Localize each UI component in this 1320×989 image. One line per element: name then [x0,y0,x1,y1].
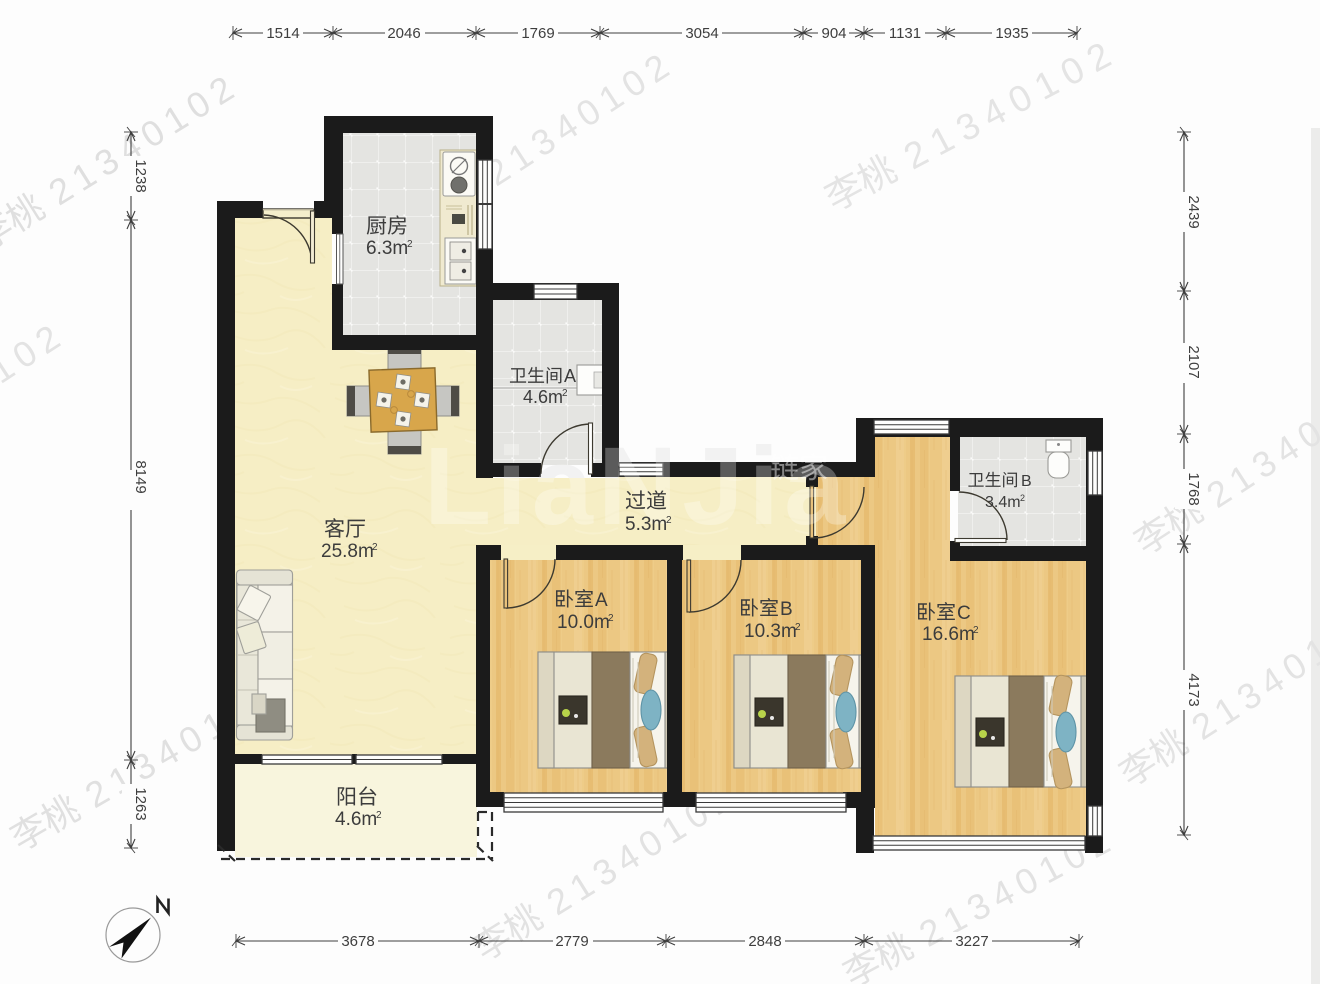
svg-text:2: 2 [795,622,801,633]
svg-text:2779: 2779 [555,933,588,950]
svg-text:10.0m: 10.0m [557,612,610,633]
svg-text:3054: 3054 [685,25,718,42]
svg-text:904: 904 [821,25,846,42]
svg-text:2439: 2439 [1185,195,1202,228]
svg-text:4.6m: 4.6m [523,387,563,407]
svg-text:1768: 1768 [1185,472,1202,505]
svg-text:16.6m: 16.6m [922,624,975,645]
svg-text:8149: 8149 [132,460,149,493]
svg-text:10.3m: 10.3m [744,621,797,642]
svg-text:2848: 2848 [748,933,781,950]
svg-text:4.6m: 4.6m [335,809,377,830]
svg-text:B: B [780,599,793,620]
svg-text:25.8m: 25.8m [321,541,374,562]
svg-text:2: 2 [666,515,672,526]
svg-text:1935: 1935 [995,25,1028,42]
svg-text:1514: 1514 [266,25,299,42]
svg-text:2107: 2107 [1185,345,1202,378]
svg-text:2046: 2046 [387,25,420,42]
svg-text:1131: 1131 [889,25,921,42]
svg-text:A: A [564,366,576,386]
svg-text:A: A [595,590,608,611]
svg-text:C: C [957,603,971,624]
svg-text:5.3m: 5.3m [625,514,667,535]
svg-text:2: 2 [407,239,413,250]
svg-text:2: 2 [376,810,382,821]
svg-text:3678: 3678 [341,933,374,950]
svg-text:1263: 1263 [132,787,149,820]
svg-text:6.3m: 6.3m [366,238,408,259]
svg-text:B: B [1021,473,1032,490]
svg-text:1769: 1769 [521,25,554,42]
svg-text:2: 2 [973,625,979,636]
svg-text:3227: 3227 [955,933,988,950]
svg-text:2: 2 [1020,493,1025,503]
svg-text:2: 2 [372,542,378,553]
svg-text:4173: 4173 [1185,673,1202,706]
svg-text:2: 2 [608,613,614,624]
svg-text:1238: 1238 [132,159,149,192]
svg-text:2: 2 [562,388,568,399]
svg-text:3.4m: 3.4m [985,494,1021,511]
